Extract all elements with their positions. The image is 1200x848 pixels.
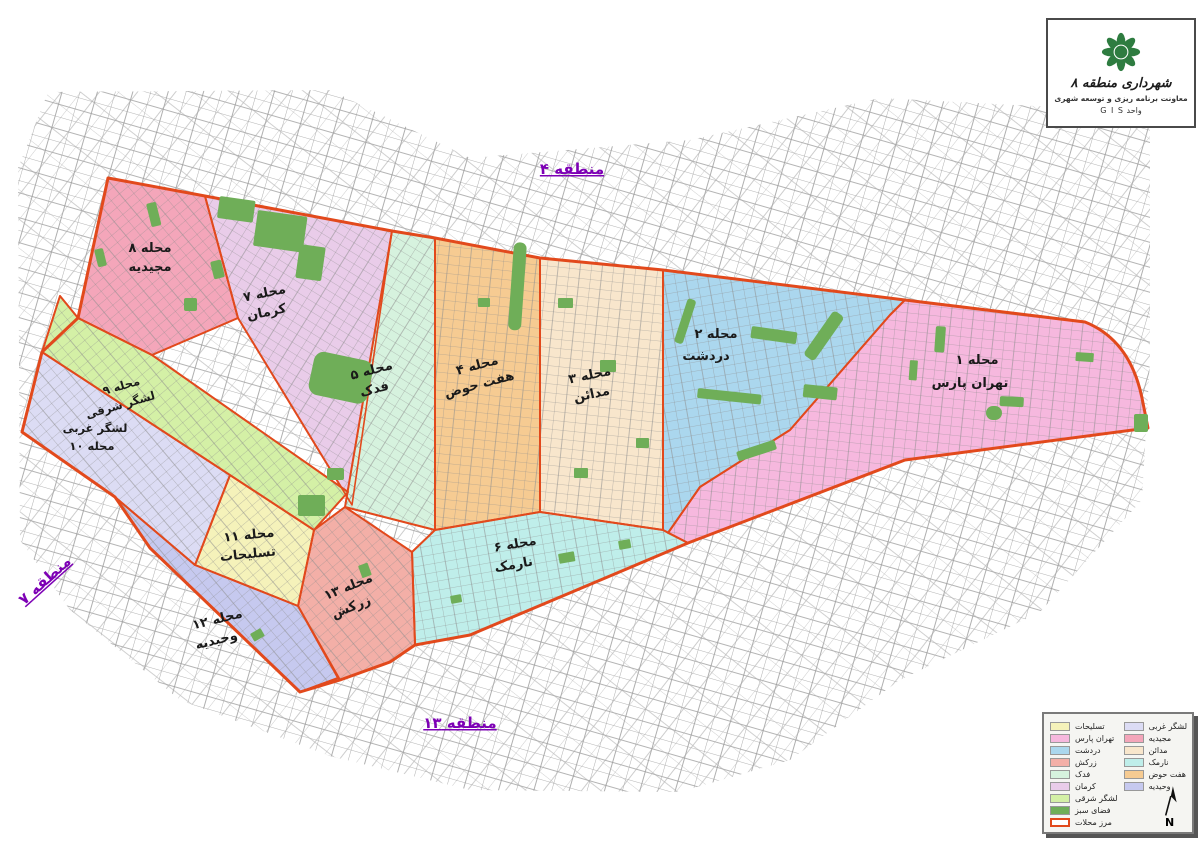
legend-box: تسلیحات تهران پارس دردشت زرکش فدک کرمان … bbox=[1042, 712, 1194, 834]
legend-left-column: تسلیحات تهران پارس دردشت زرکش فدک کرمان … bbox=[1050, 722, 1118, 827]
legend-swatch bbox=[1050, 782, 1070, 791]
park-patch bbox=[574, 468, 588, 478]
legend-item: لشگر غربی bbox=[1124, 722, 1187, 731]
label-tehranpars-name: تهران پارس bbox=[932, 376, 1009, 391]
park-patch bbox=[327, 468, 344, 480]
legend-label: مرز محلات bbox=[1075, 818, 1112, 827]
legend-label: دردشت bbox=[1075, 746, 1101, 755]
legend-label: مجیدیه bbox=[1149, 734, 1172, 743]
legend-item: نارمک bbox=[1124, 758, 1187, 767]
legend-item: لشگر شرقی bbox=[1050, 794, 1118, 803]
legend-label: تهران پارس bbox=[1075, 734, 1114, 743]
legend-item: تسلیحات bbox=[1050, 722, 1118, 731]
legend-swatch bbox=[1050, 794, 1070, 803]
legend-swatch bbox=[1124, 770, 1144, 779]
label-district-4: منطقه ۴ bbox=[540, 160, 604, 178]
legend-item: زرکش bbox=[1050, 758, 1118, 767]
legend-item: کرمان bbox=[1050, 782, 1118, 791]
legend-label: لشگر شرقی bbox=[1075, 794, 1118, 803]
park-patch bbox=[1075, 352, 1094, 362]
legend-item-boundary: مرز محلات bbox=[1050, 818, 1118, 827]
map-sheet: محله ۸ مجیدیه محله ۷ کرمان محله ۵ فدک مح… bbox=[0, 0, 1200, 848]
park-patch bbox=[909, 360, 918, 381]
legend-label: فضای سبز bbox=[1075, 806, 1111, 815]
legend-swatch bbox=[1050, 746, 1070, 755]
legend-swatch bbox=[1124, 722, 1144, 731]
label-majidieh-no: محله ۸ bbox=[128, 241, 171, 256]
label-dardasht-name: دردشت bbox=[682, 349, 730, 364]
sheet-subtitle: معاونت برنامه ریزی و توسعه شهری bbox=[1054, 94, 1187, 103]
park-patch bbox=[295, 244, 325, 281]
park-patch bbox=[478, 298, 490, 307]
legend-swatch bbox=[1124, 746, 1144, 755]
legend-label: لشگر غربی bbox=[1149, 722, 1187, 731]
park-patch bbox=[986, 406, 1002, 420]
legend-item: هفت حوض bbox=[1124, 770, 1187, 779]
green-space-swatch bbox=[1050, 806, 1070, 815]
district-8-map: محله ۸ مجیدیه محله ۷ کرمان محله ۵ فدک مح… bbox=[0, 0, 1200, 848]
label-district-13: منطقه ۱۳ bbox=[423, 714, 496, 732]
legend-swatch bbox=[1124, 734, 1144, 743]
legend-label: مدائن bbox=[1149, 746, 1168, 755]
north-label: N bbox=[1165, 816, 1174, 828]
legend-label: نارمک bbox=[1149, 758, 1169, 767]
gis-unit-label: واحد G I S bbox=[1100, 106, 1142, 115]
park-patch bbox=[934, 326, 946, 353]
label-majidieh-name: مجیدیه bbox=[129, 260, 172, 275]
park-patch bbox=[184, 298, 197, 311]
legend-label: کرمان bbox=[1075, 782, 1096, 791]
legend-item: مجیدیه bbox=[1124, 734, 1187, 743]
park-patch bbox=[636, 438, 649, 448]
legend-item: تهران پارس bbox=[1050, 734, 1118, 743]
park-patch bbox=[558, 298, 573, 308]
legend-label: فدک bbox=[1075, 770, 1090, 779]
legend-label: هفت حوض bbox=[1149, 770, 1186, 779]
legend-item: فدک bbox=[1050, 770, 1118, 779]
label-lashgar-gharbi-name: لشگر غربی bbox=[63, 421, 128, 435]
legend-label: زرکش bbox=[1075, 758, 1097, 767]
park-patch bbox=[1134, 414, 1148, 432]
legend-swatch bbox=[1124, 782, 1144, 791]
legend-swatch bbox=[1050, 770, 1070, 779]
park-patch bbox=[298, 495, 325, 516]
legend-swatch bbox=[1050, 734, 1070, 743]
boundary-swatch bbox=[1050, 818, 1070, 827]
tehran-municipality-logo bbox=[1100, 31, 1142, 73]
legend-item: مدائن bbox=[1124, 746, 1187, 755]
label-dardasht-no: محله ۲ bbox=[694, 327, 737, 342]
park-patch bbox=[253, 210, 308, 253]
legend-swatch bbox=[1050, 722, 1070, 731]
title-box: شهرداری منطقه ۸ معاونت برنامه ریزی و توس… bbox=[1046, 18, 1196, 128]
label-lashgar-gharbi-no: محله ۱۰ bbox=[69, 439, 114, 453]
label-tehranpars-no: محله ۱ bbox=[955, 353, 998, 368]
legend-swatch bbox=[1050, 758, 1070, 767]
legend-swatch bbox=[1124, 758, 1144, 767]
legend-item-green-space: فضای سبز bbox=[1050, 806, 1118, 815]
sheet-title: شهرداری منطقه ۸ bbox=[1070, 76, 1171, 91]
park-patch bbox=[999, 396, 1023, 407]
legend-label: تسلیحات bbox=[1075, 722, 1105, 731]
legend-item: دردشت bbox=[1050, 746, 1118, 755]
north-arrow: N bbox=[1156, 784, 1184, 828]
